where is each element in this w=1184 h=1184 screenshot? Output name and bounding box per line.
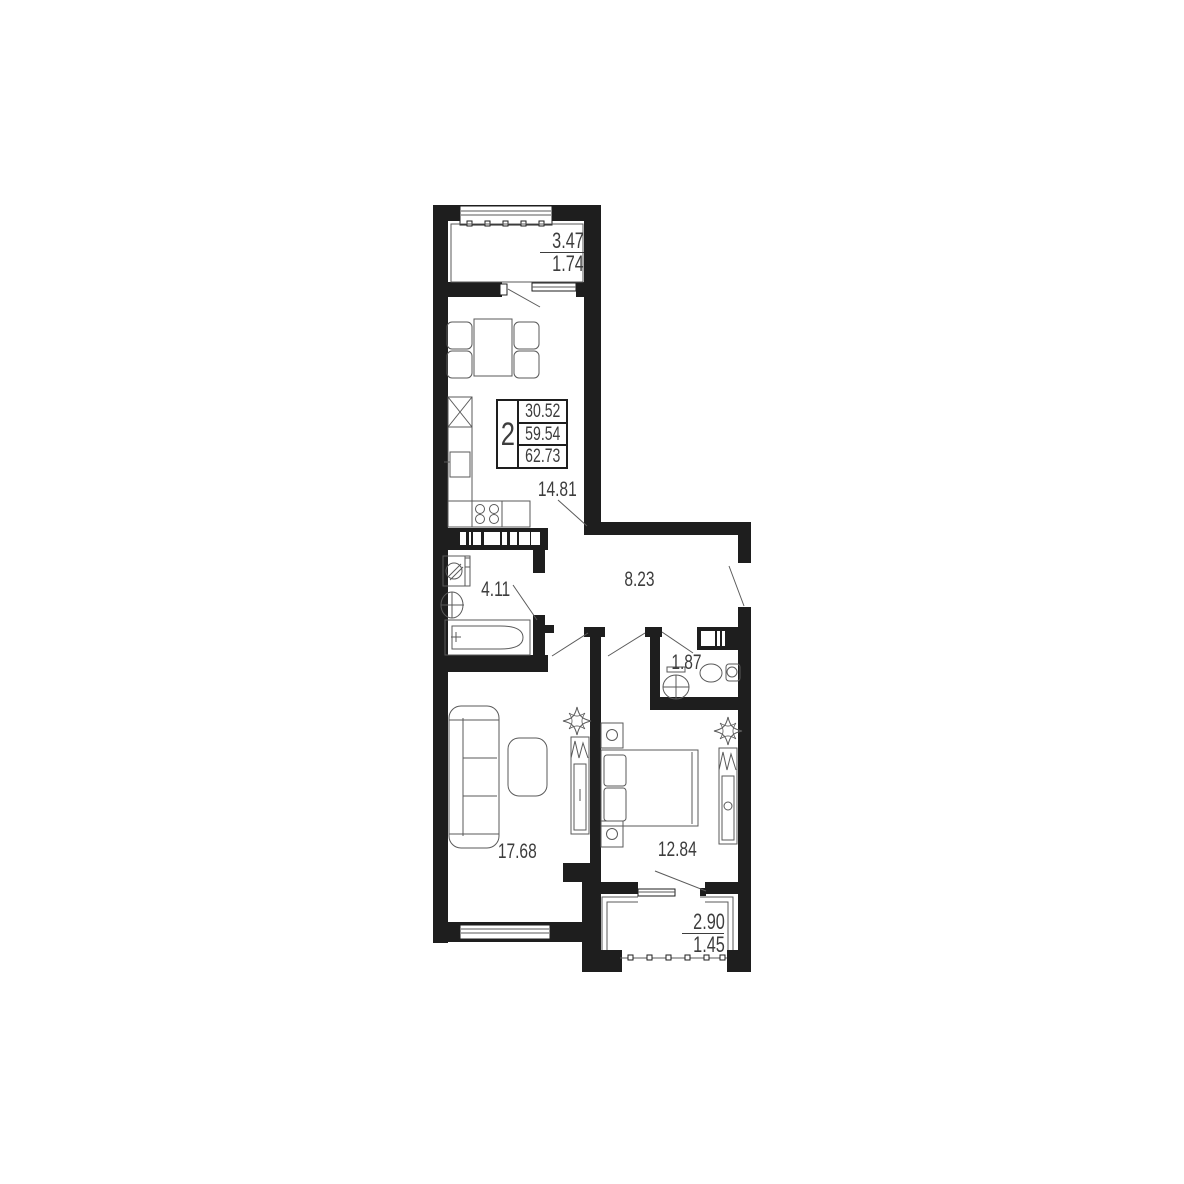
bathroom-fixtures bbox=[441, 556, 530, 655]
bedroom-door-swing bbox=[608, 633, 645, 656]
kitchen-vent-wall bbox=[460, 532, 540, 545]
living-room-area-label: 17.68 bbox=[490, 842, 544, 862]
living-area-value: 30.52 bbox=[518, 400, 567, 423]
bedroom-furniture bbox=[601, 715, 744, 847]
chair bbox=[447, 322, 472, 349]
coffee-table bbox=[508, 738, 547, 796]
rooms-count-label: 2 bbox=[497, 400, 518, 468]
chair bbox=[514, 322, 539, 349]
living-room-wardrobe bbox=[571, 737, 589, 834]
entrance-door-swing bbox=[729, 566, 744, 606]
pillow bbox=[604, 755, 626, 786]
total-area-value: 62.73 bbox=[518, 445, 567, 468]
dining-table bbox=[474, 319, 512, 376]
pillow bbox=[604, 788, 626, 821]
plant bbox=[561, 705, 593, 737]
bedroom-balcony-window-sill bbox=[638, 888, 706, 896]
hall-area-label: 8.23 bbox=[616, 570, 662, 590]
nightstand bbox=[601, 821, 623, 847]
top-balcony-area-label: 3.47 1.74 bbox=[540, 231, 584, 274]
floor-plan-drawing bbox=[0, 0, 1184, 1184]
balcony-area-full: 2.90 bbox=[693, 912, 725, 932]
double-bed bbox=[601, 750, 698, 826]
chair bbox=[514, 351, 539, 378]
kitchen-area-label: 14.81 bbox=[531, 480, 581, 500]
top-balcony-window bbox=[460, 206, 552, 226]
living-room-furniture bbox=[449, 705, 593, 848]
bottom-balcony-area-label: 2.90 1.45 bbox=[682, 912, 724, 955]
bathtub bbox=[445, 620, 530, 655]
floor-plan-canvas: 3.47 1.74 2 30.52 59.54 62.73 14.81 8.23… bbox=[0, 0, 1184, 1184]
bedroom-wardrobe bbox=[719, 748, 737, 844]
chair bbox=[447, 351, 472, 378]
balcony-area-counted: 1.74 bbox=[552, 254, 584, 274]
bathroom-sink bbox=[441, 592, 464, 618]
stove bbox=[472, 501, 502, 527]
kitchen-counter-horizontal bbox=[448, 501, 530, 527]
apartment-area-value: 59.54 bbox=[518, 423, 567, 446]
wc-area-label: 1.87 bbox=[664, 653, 708, 673]
sofa bbox=[449, 706, 499, 848]
bathroom-area-label: 4.11 bbox=[474, 580, 518, 600]
bedroom-area-label: 12.84 bbox=[649, 840, 705, 860]
kitchen-balcony-door-swing bbox=[508, 289, 540, 307]
balcony-area-full: 3.47 bbox=[552, 231, 584, 251]
hob-cross bbox=[448, 397, 472, 427]
living-room-door-swing bbox=[552, 633, 588, 656]
wc-door-swing bbox=[662, 632, 693, 653]
living-room-window bbox=[460, 925, 550, 939]
bedroom-balcony-door-swing bbox=[655, 871, 706, 891]
kitchen-area-leader-line bbox=[558, 500, 587, 526]
kitchen-sink bbox=[450, 452, 470, 477]
nightstand bbox=[601, 723, 623, 748]
balcony-area-counted: 1.45 bbox=[693, 935, 725, 955]
